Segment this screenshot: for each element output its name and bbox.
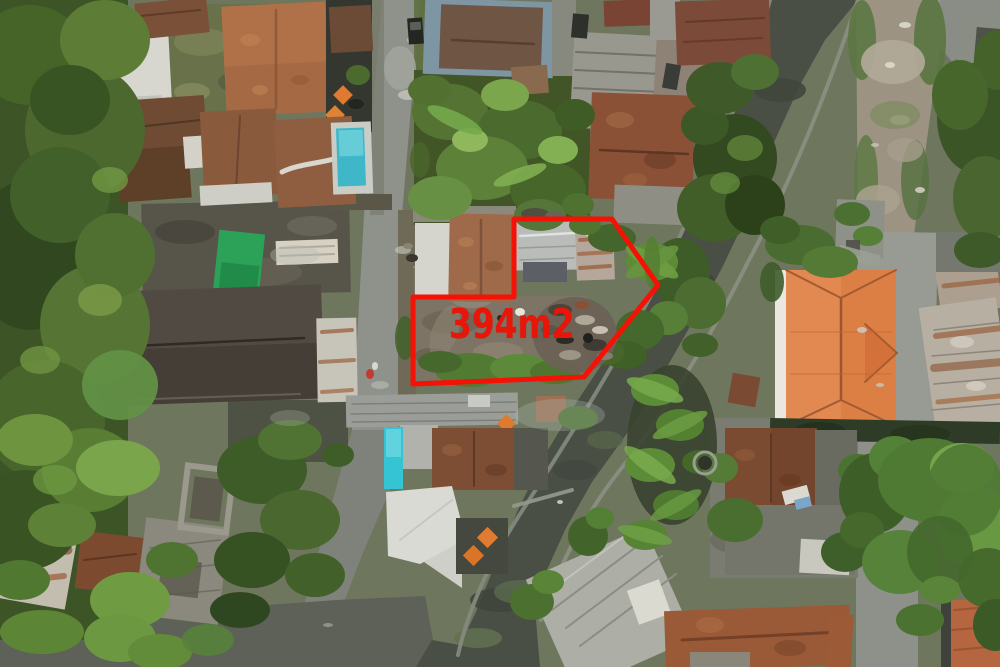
area-label: 394m2 xyxy=(449,301,574,348)
aerial-photo: 394m2 xyxy=(0,0,1000,667)
